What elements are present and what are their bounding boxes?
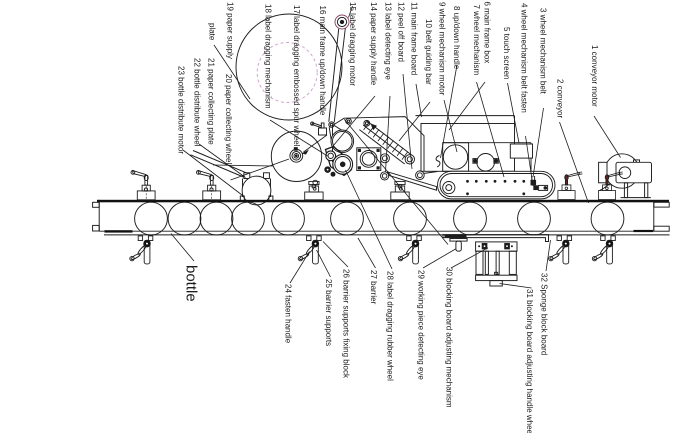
svg-text:2 conveyor: 2 conveyor <box>556 79 565 118</box>
svg-text:19 paper supply: 19 paper supply <box>226 2 235 59</box>
svg-text:16 main frame up/down handle: 16 main frame up/down handle <box>318 6 327 116</box>
svg-text:25 barrier supports: 25 barrier supports <box>324 279 333 346</box>
svg-text:31 blocking board adjusting ha: 31 blocking board adjusting handle wheel <box>525 289 534 433</box>
svg-text:8 up/down handle: 8 up/down handle <box>452 6 461 70</box>
svg-text:28 label dragging rubber wheel: 28 label dragging rubber wheel <box>386 271 395 381</box>
svg-text:27 barrier: 27 barrier <box>369 270 378 305</box>
svg-text:6 main frame box: 6 main frame box <box>483 2 492 64</box>
svg-text:26 barrier supports fixing blo: 26 barrier supports fixing block <box>342 269 351 379</box>
svg-text:4 wheel mechanism belt fasten: 4 wheel mechanism belt fasten <box>520 3 529 113</box>
svg-text:23 bottle distribute motor: 23 bottle distribute motor <box>177 66 186 154</box>
svg-text:11 main frame board: 11 main frame board <box>410 2 419 75</box>
svg-text:10 belt guiding bar: 10 belt guiding bar <box>424 19 433 85</box>
svg-text:12 peel off board: 12 peel off board <box>397 2 406 62</box>
svg-text:29 working piece detecting eye: 29 working piece detecting eye <box>417 270 426 380</box>
svg-text:7 wheel mechanism: 7 wheel mechanism <box>472 5 481 76</box>
svg-text:17 label dragging embossed spu: 17 label dragging embossed spur wheel <box>292 5 301 147</box>
svg-text:24 fasten handle: 24 fasten handle <box>284 284 293 344</box>
svg-text:30 blocking board adjusting me: 30 blocking board adjusting mechanism <box>445 267 454 408</box>
svg-text:plate: plate <box>208 23 217 41</box>
svg-text:13 label detecting eye: 13 label detecting eye <box>384 2 393 80</box>
svg-text:9 wheel mechanism motor: 9 wheel mechanism motor <box>438 2 447 96</box>
svg-text:5 touch screen: 5 touch screen <box>502 27 511 79</box>
svg-text:22 bottle distribute wheel: 22 bottle distribute wheel <box>193 58 202 147</box>
svg-text:32 Sponge block board: 32 Sponge block board <box>540 273 549 355</box>
svg-text:15 label dragging motor: 15 label dragging motor <box>348 2 357 86</box>
svg-text:1 conveyor motor: 1 conveyor motor <box>590 45 599 107</box>
svg-text:bottle: bottle <box>183 265 200 302</box>
svg-text:14 paper supply handle: 14 paper supply handle <box>369 2 378 86</box>
svg-text:18 label dragging mechanism: 18 label dragging mechanism <box>264 4 273 109</box>
svg-text:20 paper collecting wheel: 20 paper collecting wheel <box>224 74 233 165</box>
svg-text:3 wheel mechanism belt: 3 wheel mechanism belt <box>538 8 547 95</box>
svg-text:21 paper collecting plate: 21 paper collecting plate <box>207 58 216 145</box>
